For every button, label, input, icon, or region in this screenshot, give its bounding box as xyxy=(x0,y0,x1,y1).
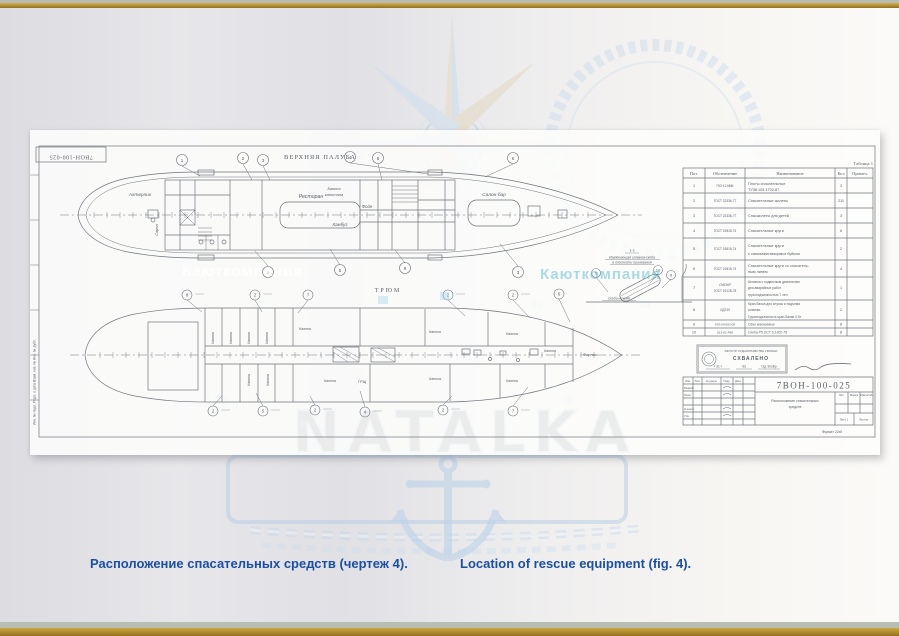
title-block: 7ВОН-100-025 Расположение спасательных с… xyxy=(683,377,873,434)
doc-name-line2: средств xyxy=(789,405,802,409)
corner-drawing-number: 7ВОН-100-025 xyxy=(49,154,93,160)
tb-col-label: Лист xyxy=(695,379,701,383)
table-row: 6 ГОСТ 19815-74 Спасательные круги со сп… xyxy=(693,264,842,274)
detail-title: 1-1 xyxy=(629,248,635,253)
table-row: 5 ГОСТ 19815-74 Спасательные круги с сам… xyxy=(693,244,842,256)
callout-number: 7 xyxy=(267,270,270,275)
svg-text:ГОСТ 19815-74: ГОСТ 19815-74 xyxy=(714,267,737,271)
callout-number: 4 xyxy=(364,410,367,415)
stamp-date: « 31 » xyxy=(714,365,723,369)
tb-row-label: Пров. xyxy=(684,393,692,397)
watermark-chip xyxy=(378,296,388,304)
svg-text:Спасательные круги со спасател: Спасательные круги со спасатель- xyxy=(748,264,810,268)
svg-text:ным линем: ным линем xyxy=(748,270,768,274)
table-caption: Таблица 1 xyxy=(853,161,873,166)
callout-number: 8 xyxy=(670,273,673,278)
callout-number: 2 xyxy=(512,293,515,298)
cabin-label: Каюта xyxy=(211,332,215,344)
svg-text:Спасательные круги: Спасательные круги xyxy=(748,244,784,248)
svg-text:ГОСТ 19815-74: ГОСТ 19815-74 xyxy=(714,247,737,251)
svg-text:ГОСТ 19815-74: ГОСТ 19815-74 xyxy=(714,229,737,233)
table-header: Примеч. xyxy=(852,171,868,176)
approval-stamp: РЕГІСТР СУДНОПЛАВСТВА УКРАЇНИ СХВАЛЕНО «… xyxy=(697,345,851,373)
svg-text:4: 4 xyxy=(693,229,695,233)
tb-scale-label: Масштаб xyxy=(861,393,873,397)
cabin-label: Каюта xyxy=(266,374,270,386)
callout-number: 2 xyxy=(254,293,257,298)
frame-left-text: Инв. № подл. Подп. и дата Взам. инв. № И… xyxy=(33,339,37,425)
cabin-label: Каюта xyxy=(299,327,311,331)
tb-col-label: № докум. xyxy=(706,380,718,383)
room-label-galley: Камбуз xyxy=(332,222,347,227)
svg-text:7: 7 xyxy=(693,286,695,290)
format-note: Формат 22х5 xyxy=(822,430,842,434)
svg-text:211: 211 xyxy=(838,199,844,203)
callout-number: 3 xyxy=(517,270,520,275)
svg-text:3: 3 xyxy=(840,184,842,188)
tb-row-label: Разраб. xyxy=(684,386,694,390)
tb-row-label: Утв. xyxy=(684,414,690,418)
stamp-date: Од. 9поБр xyxy=(761,365,776,369)
bottom-gold-strip xyxy=(0,628,899,636)
svg-text:ГОСТ 22336-77: ГОСТ 22336-77 xyxy=(714,199,737,203)
svg-text:1: 1 xyxy=(693,184,695,188)
svg-text:с самозажигающимся буйком: с самозажигающимся буйком xyxy=(748,252,800,256)
caption-english: Location of rescue equipment (fig. 4). xyxy=(460,556,691,571)
caption-russian: Расположение спасательных средств (черте… xyxy=(90,556,408,571)
svg-text:Огни магниевые: Огни магниевые xyxy=(748,323,775,327)
svg-text:6: 6 xyxy=(693,267,695,271)
room-label-restaurant: Ресторан xyxy=(299,194,324,200)
room-label-captain2: капитана xyxy=(325,192,344,197)
lower-deck-plan xyxy=(70,294,642,411)
room-label-captain: Каюта xyxy=(327,186,341,191)
anchor-icon xyxy=(390,457,506,558)
cabin-label: Каюта xyxy=(429,330,441,334)
cabin-label: Каюта xyxy=(544,349,556,353)
svg-text:3: 3 xyxy=(840,214,842,218)
stamp-date: 93 xyxy=(742,365,746,369)
detail-view: 1-1 Извлекающая штанга-скоба в плоскости… xyxy=(586,248,692,304)
svg-text:ГОСТ 19128-78: ГОСТ 19128-78 xyxy=(714,289,737,293)
equipment-table: Таблица 1 Поз. Обозначение Наименование … xyxy=(683,161,874,336)
table-row: 3 ГОСТ 22336-77 Спасжилеты для детей 3 xyxy=(693,214,842,218)
svg-text:Шлюпка с подвесным двигателем: Шлюпка с подвесным двигателем xyxy=(748,280,800,284)
blueprint-drawing: 7ВОН-100-025 Инв. № подл. Подп. и дата В… xyxy=(30,130,880,455)
table-row: 1 ПСН-10МК Плоты спасательные ТУ38.105.1… xyxy=(693,182,842,192)
svg-text:ПСН-10МК: ПСН-10МК xyxy=(716,184,733,188)
table-row: 4 ГОСТ 19815-74 Спасательные круги 6 xyxy=(693,229,842,233)
tb-row-label: Н.контр. xyxy=(684,407,695,411)
table-header: Поз. xyxy=(690,171,698,176)
room-label-salon: Салон-бар xyxy=(482,192,506,198)
callout-number: 8 xyxy=(377,156,380,161)
signature-squiggle xyxy=(795,363,851,370)
svg-text:ТУ38.105.1702-87: ТУ38.105.1702-87 xyxy=(748,188,779,192)
watermark-chip xyxy=(440,292,449,300)
table-row: 8 ЛД315 Кран-балка для спуска и подъема … xyxy=(693,302,842,319)
tb-lit-label: Лит. xyxy=(839,393,844,397)
upper-deck-title: ВЕРХНЯЯ ПАЛУБА xyxy=(284,154,356,161)
svg-text:СМ196Р: СМ196Р xyxy=(719,283,732,287)
callout-number: 8 xyxy=(186,293,189,298)
svg-text:Спасательные жилеты: Спасательные жилеты xyxy=(748,199,788,203)
table-row: 9 970-04.093-05 Огни магниевые 8 xyxy=(693,323,842,327)
svg-text:8: 8 xyxy=(840,323,842,327)
tb-mass-label: Масса xyxy=(850,393,859,397)
table-header: Наименование xyxy=(776,171,803,176)
svg-text:Плоты спасательные: Плоты спасательные xyxy=(748,182,785,186)
svg-text:2: 2 xyxy=(840,247,842,251)
callout-number: 2 xyxy=(212,409,215,414)
lower-deck-title: ТРЮМ xyxy=(375,288,402,294)
room-label-foyer: Фойе xyxy=(362,204,373,209)
cabin-label: Каюта xyxy=(247,374,251,386)
svg-text:Спасательные круги: Спасательные круги xyxy=(748,229,784,233)
cabin-label: Каюта xyxy=(247,332,251,344)
svg-text:Скоба Р5 ОСТ 6.1302-79: Скоба Р5 ОСТ 6.1302-79 xyxy=(748,331,787,335)
stamp-approved: СХВАЛЕНО xyxy=(733,356,769,362)
svg-text:1: 1 xyxy=(840,286,842,290)
detail-note-1: Извлекающая штанга-скоба xyxy=(609,256,655,260)
svg-text:6: 6 xyxy=(840,229,842,233)
detail-note-2: в плоскости прилегания xyxy=(612,261,652,265)
callout-number: 2 xyxy=(314,408,317,413)
cabin-label: Каюта xyxy=(324,379,336,383)
svg-text:для аварийных работ: для аварийных работ xyxy=(748,286,782,290)
callout-number: 2 xyxy=(242,156,245,161)
table-row: 10 013-01-Р88 Скоба Р5 ОСТ 6.1302-79 8 xyxy=(692,331,842,335)
callout-number: 9 xyxy=(595,271,598,276)
callout-number: 10 xyxy=(656,268,661,273)
callout-number: 3 xyxy=(262,158,265,163)
callout-number: 6 xyxy=(512,156,515,161)
svg-text:8: 8 xyxy=(693,308,695,312)
callout-number: 7 xyxy=(512,409,515,414)
doc-name-line1: Расположение спасательных xyxy=(771,399,819,403)
tb-col-label: Дата xyxy=(735,379,741,383)
svg-text:шлюпки.: шлюпки. xyxy=(748,308,761,312)
svg-text:5: 5 xyxy=(693,247,695,251)
table-header: Обозначение xyxy=(713,171,737,176)
svg-text:013-01-Р88: 013-01-Р88 xyxy=(717,331,733,335)
tb-col-label: Изм. xyxy=(685,379,691,383)
detail-note-3: Скоба нижняя xyxy=(608,297,630,301)
cabin-label: Каюта xyxy=(229,332,233,344)
page: NATALKA xyxy=(0,0,899,636)
upper-deck-plan xyxy=(60,163,642,266)
cabin-label: Каюта xyxy=(429,377,441,381)
tb-sheet-label: Лист 1 xyxy=(840,418,849,422)
svg-text:Спасжилеты для детей: Спасжилеты для детей xyxy=(748,214,789,218)
svg-text:10: 10 xyxy=(692,331,696,335)
svg-text:2: 2 xyxy=(693,199,695,203)
svg-text:Грузоподъемность кран-балки 0,: Грузоподъемность кран-балки 0,5т xyxy=(748,315,802,319)
room-label-aft-peak: Ахтерпик xyxy=(128,192,152,198)
table-row: 2 ГОСТ 22336-77 Спасательные жилеты 211 xyxy=(693,199,844,203)
table-header: Кол xyxy=(837,171,845,176)
callout-number: 1 xyxy=(181,158,184,163)
upper-deck-callouts: 1 2 3 4 8 6 7 5 9 3 xyxy=(177,152,524,278)
svg-text:4: 4 xyxy=(840,267,842,271)
svg-text:ГОСТ 22336-77: ГОСТ 22336-77 xyxy=(714,214,737,218)
svg-text:8: 8 xyxy=(840,331,842,335)
svg-text:3: 3 xyxy=(693,214,695,218)
callout-number: 5 xyxy=(339,268,342,273)
cabin-label: Каюта xyxy=(506,332,518,336)
callout-number: 2 xyxy=(442,408,445,413)
cabin-label: Каюта xyxy=(265,332,269,344)
room-label-sauna: Сауна xyxy=(154,224,159,236)
svg-text:970-04.093-05: 970-04.093-05 xyxy=(715,323,735,327)
callout-number: 9 xyxy=(404,266,407,271)
cabin-label: Каюта xyxy=(506,379,518,383)
callout-number: 6 xyxy=(558,292,561,297)
table-row: 7 СМ196Р ГОСТ 19128-78 Шлюпка с подвесны… xyxy=(693,280,842,297)
room-label-forepeak: Форпик xyxy=(583,352,598,357)
stamp-org: РЕГІСТР СУДНОПЛАВСТВА УКРАЇНИ xyxy=(725,349,778,353)
svg-text:9: 9 xyxy=(693,323,695,327)
callout-number: 5 xyxy=(262,409,265,414)
svg-text:грузоподъемностью 7 чел: грузоподъемностью 7 чел xyxy=(748,293,788,297)
tb-sheets-label: Листов xyxy=(859,418,869,422)
title-block-number: 7ВОН-100-025 xyxy=(777,381,852,391)
svg-text:Кран-балка для спуска и подъем: Кран-балка для спуска и подъема xyxy=(748,302,800,306)
room-label-switchboard: ГРЩ xyxy=(358,379,367,384)
tb-col-label: Подп. xyxy=(724,379,731,383)
svg-text:ЛД315: ЛД315 xyxy=(719,308,730,312)
svg-text:2: 2 xyxy=(840,308,842,312)
callout-number: 7 xyxy=(307,293,310,298)
blueprint-sheet: 7ВОН-100-025 Инв. № подл. Подп. и дата В… xyxy=(30,130,880,455)
